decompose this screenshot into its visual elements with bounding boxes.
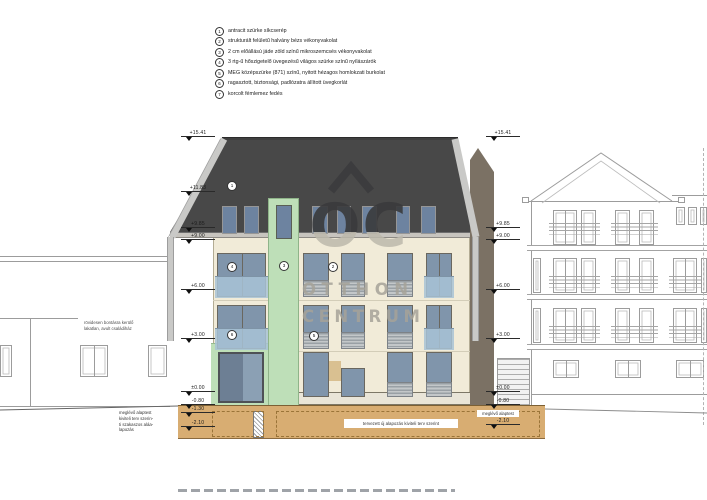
level-marker: +11.83 <box>181 185 215 192</box>
level-triangle-icon <box>491 405 497 409</box>
material-tag-louver: 5 <box>309 331 319 341</box>
level-triangle-icon <box>186 137 192 141</box>
left-neighbor-label-line2: lakatlan, avult családiház <box>84 326 176 332</box>
level-triangle-icon <box>491 240 497 244</box>
level-marker: -1.30 <box>181 406 215 413</box>
glass-reflection <box>243 354 262 401</box>
level-triangle-icon <box>186 339 192 343</box>
material-tag-facade: 2 <box>328 262 338 272</box>
level-marker: ±0.00 <box>181 385 215 392</box>
level-triangle-icon <box>186 228 192 232</box>
storefront-window <box>218 352 264 403</box>
elevation-drawing: 1antracit szürke síkcserép 2strukturált … <box>0 0 707 500</box>
level-marker: -2.10 <box>486 418 520 425</box>
level-triangle-icon <box>491 392 497 396</box>
level-triangle-icon <box>186 427 192 431</box>
watermark-text-centrum: CENTRUM <box>302 307 412 326</box>
material-tag-roof: 1 <box>227 181 237 191</box>
level-marker: ±0.00 <box>486 385 520 392</box>
watermark-logo-bottom-text: OC <box>300 232 418 259</box>
right-neighbor-gable-inner <box>542 161 660 203</box>
terrain-line-right <box>545 409 707 413</box>
material-tag-green-render: 3 <box>279 261 289 271</box>
level-triangle-icon <box>491 425 497 429</box>
level-marker: -0.80 <box>181 398 215 405</box>
level-marker: -2.10 <box>181 420 215 427</box>
stair-tower-window <box>276 205 292 239</box>
level-triangle-icon <box>186 290 192 294</box>
new-foundation-label: tervezett új alapozás kiviteli terv szer… <box>344 419 458 428</box>
level-marker: +9.00 <box>486 233 520 240</box>
level-triangle-icon <box>491 228 497 232</box>
level-marker: +15.41 <box>486 130 520 137</box>
level-marker: -0.80 <box>486 398 520 405</box>
downpipe-right <box>472 237 479 341</box>
level-marker: +15.41 <box>181 130 215 137</box>
level-marker: +9.85 <box>486 221 520 228</box>
watermark-chevron-icon <box>331 167 371 191</box>
existing-foundation-label-left: meglévő alaptest kiviteli terv szerin- t… <box>119 410 175 433</box>
level-triangle-icon <box>186 192 192 196</box>
watermark-logo-bottom: OC <box>300 232 418 259</box>
level-triangle-icon <box>186 392 192 396</box>
level-marker: +9.00 <box>181 233 215 240</box>
level-marker: +9.85 <box>181 221 215 228</box>
level-marker: +3.00 <box>486 332 520 339</box>
existing-foundation-label-right: meglévő alaptest <box>477 410 519 417</box>
foundation-dashed-outline <box>212 411 264 437</box>
level-triangle-icon <box>186 413 192 417</box>
watermark-logo-top: OC <box>300 193 418 232</box>
level-triangle-icon <box>491 290 497 294</box>
right-neighbor-gable <box>531 153 672 201</box>
level-marker: +6.00 <box>486 283 520 290</box>
watermark-text-otthon: OTTHON <box>302 280 412 299</box>
foundation-note-line: lapozás <box>119 427 175 433</box>
level-marker: +6.00 <box>181 283 215 290</box>
level-triangle-icon <box>491 137 497 141</box>
level-marker: +3.00 <box>181 332 215 339</box>
level-triangle-icon <box>491 339 497 343</box>
level-triangle-icon <box>186 240 192 244</box>
left-neighbor-label: rövidesen bontásra kerülő lakatlan, avul… <box>84 320 176 332</box>
material-tag-window: 4 <box>227 262 237 272</box>
material-tag-balustrade: 6 <box>227 330 237 340</box>
